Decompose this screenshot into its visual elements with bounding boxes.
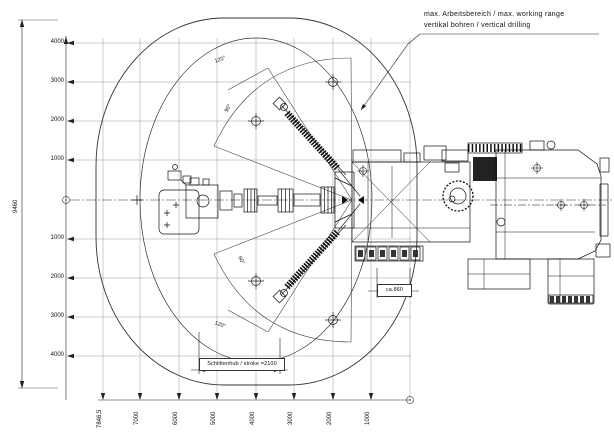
feed-rail-lower bbox=[273, 225, 346, 303]
left-axis-tick: 4000 bbox=[42, 39, 64, 45]
bottom-axis-tick: 7000 bbox=[134, 412, 140, 425]
bottom-axis-tick: 2000 bbox=[327, 412, 333, 425]
drawing-canvas bbox=[0, 0, 614, 438]
overall-height-label: 9460 bbox=[13, 200, 19, 213]
left-axis-tick: 3000 bbox=[42, 313, 64, 319]
working-range-outline bbox=[96, 18, 417, 385]
bottom-ordinate-chain bbox=[98, 393, 414, 404]
annotation-line-2: vertikal bohren / vertical drilling bbox=[424, 22, 531, 29]
bottom-axis-tick: 6000 bbox=[173, 412, 179, 425]
track-pads-front bbox=[355, 246, 423, 261]
annotation-leader bbox=[361, 34, 599, 110]
overall-height-dimension bbox=[18, 20, 58, 389]
drive-sprocket bbox=[442, 150, 497, 211]
left-axis-tick: 2000 bbox=[42, 117, 64, 123]
bottom-axis-tick: 4000 bbox=[250, 412, 256, 425]
bottom-axis-tick: 5000 bbox=[211, 412, 217, 425]
offset-dimension-label: ca.860 bbox=[377, 284, 412, 297]
left-axis-tick: 3000 bbox=[42, 78, 64, 84]
stroke-dimension-label: Schlittenhub / stroke =2100 bbox=[199, 358, 285, 371]
left-axis-tick: 1000 bbox=[42, 156, 64, 162]
feed-rail-upper bbox=[273, 97, 346, 175]
grid bbox=[67, 38, 411, 400]
bottom-axis-tick: 7846,5 bbox=[97, 410, 103, 428]
machine-drawing bbox=[70, 97, 612, 304]
rotary-head bbox=[186, 178, 218, 218]
technical-drawing-page: max. Arbeitsbereich / max. working range… bbox=[0, 0, 614, 438]
left-ordinate-axis bbox=[63, 36, 75, 400]
drill-tip bbox=[131, 195, 143, 205]
left-axis-tick: 2000 bbox=[42, 274, 64, 280]
bottom-axis-tick: 1000 bbox=[365, 412, 371, 425]
left-axis-tick: 4000 bbox=[42, 352, 64, 358]
left-axis-tick: 1000 bbox=[42, 235, 64, 241]
dimension-lines bbox=[18, 20, 599, 404]
bottom-axis-tick: 3000 bbox=[288, 412, 294, 425]
deck bbox=[352, 146, 470, 242]
annotation-line-1: max. Arbeitsbereich / max. working range bbox=[424, 11, 564, 18]
rear-lower-units bbox=[468, 259, 594, 304]
